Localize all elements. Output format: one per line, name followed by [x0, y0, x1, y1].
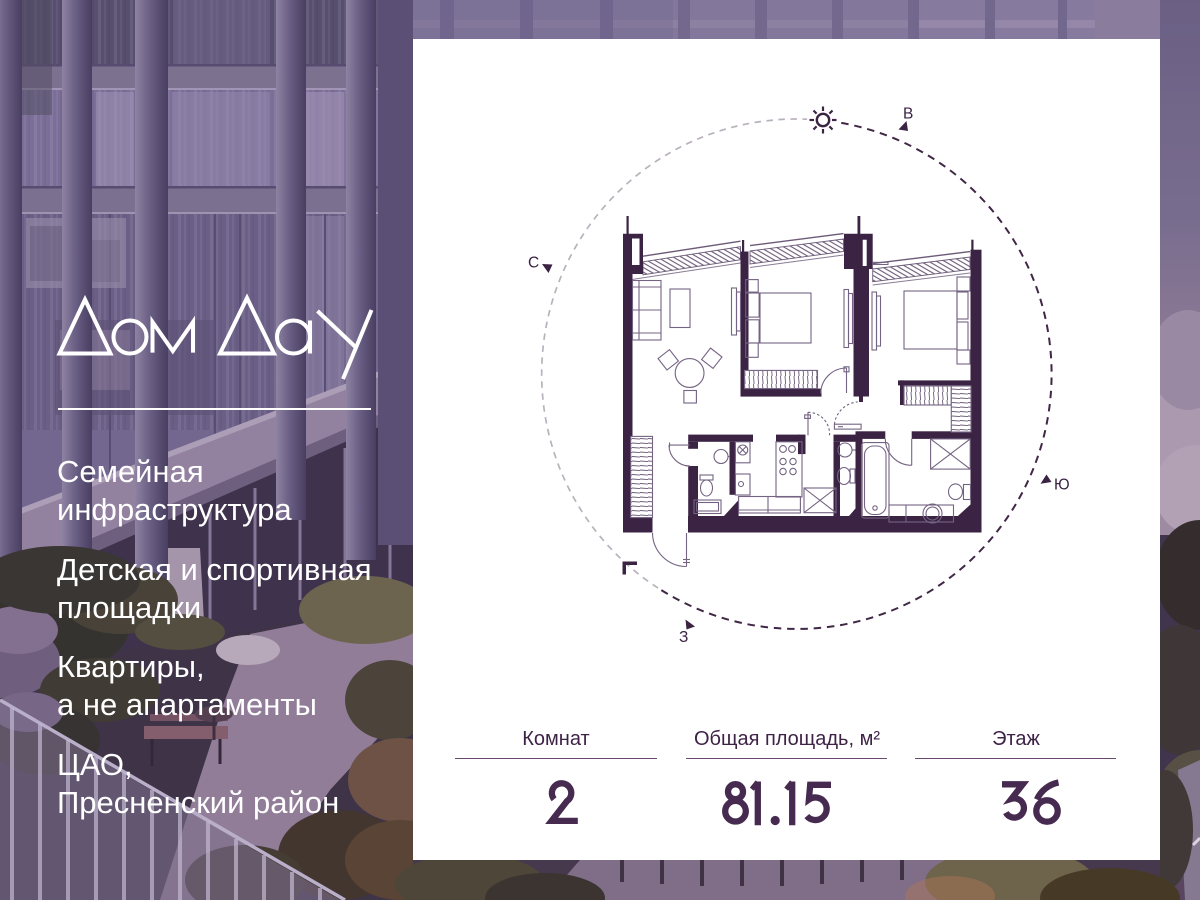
svg-text:В: В — [903, 106, 913, 123]
svg-text:Ю: Ю — [1054, 477, 1070, 494]
svg-text:С: С — [528, 255, 539, 272]
svg-text:З: З — [679, 629, 688, 646]
